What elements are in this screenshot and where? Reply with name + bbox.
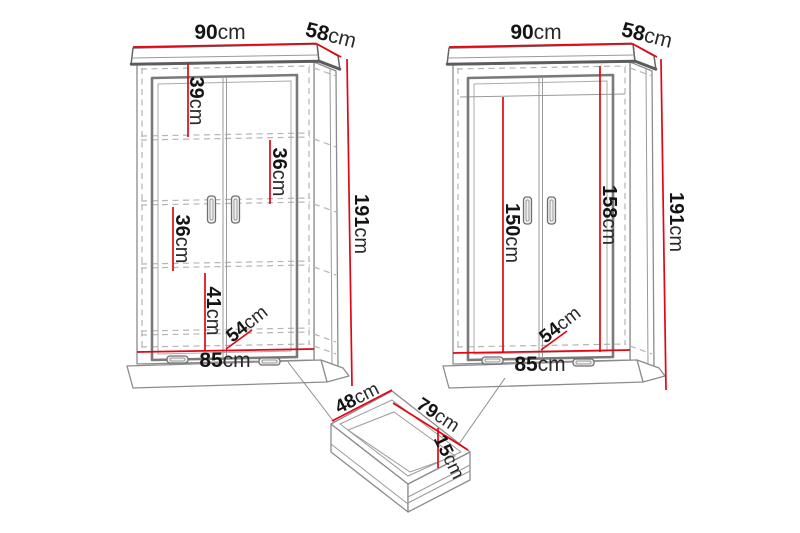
left-lower-shelf-label: 36cm xyxy=(171,215,193,264)
right-hanging-right-label: 158cm xyxy=(598,185,620,245)
furniture-dimensions-diagram: 90cm 58cm 191cm 39cm 36cm 36cm 41cm 54cm… xyxy=(0,0,800,533)
left-interior-width-label: 85cm xyxy=(199,349,250,372)
left-body-front xyxy=(137,62,314,364)
left-wardrobe: 90cm 58cm 191cm 39cm 36cm 36cm 41cm 54cm… xyxy=(127,18,372,388)
left-height-label: 191cm xyxy=(350,194,372,254)
left-bottom-section-label: 41cm xyxy=(202,287,224,336)
right-height-label: 191cm xyxy=(665,192,687,252)
diagram-canvas: 90cm 58cm 191cm 39cm 36cm 36cm 41cm 54cm… xyxy=(0,0,800,533)
right-interior-width-label: 85cm xyxy=(514,353,565,376)
right-door-handle-left xyxy=(524,197,532,224)
right-wardrobe: 90cm 58cm 191cm 150cm 158cm 54cm 85cm xyxy=(443,18,687,390)
left-door-handle-right xyxy=(232,196,240,223)
left-upper-shelf-label: 36cm xyxy=(268,148,290,197)
left-door-handle-left xyxy=(208,196,216,223)
right-body-side-panel xyxy=(630,62,654,369)
right-hanging-left-label: 150cm xyxy=(501,203,523,263)
left-body-side-panel xyxy=(314,62,338,369)
right-door-handle-right xyxy=(548,197,556,224)
left-width-label: 90cm xyxy=(194,21,245,44)
right-width-label: 90cm xyxy=(510,21,561,44)
left-top-section-label: 39cm xyxy=(185,77,207,126)
